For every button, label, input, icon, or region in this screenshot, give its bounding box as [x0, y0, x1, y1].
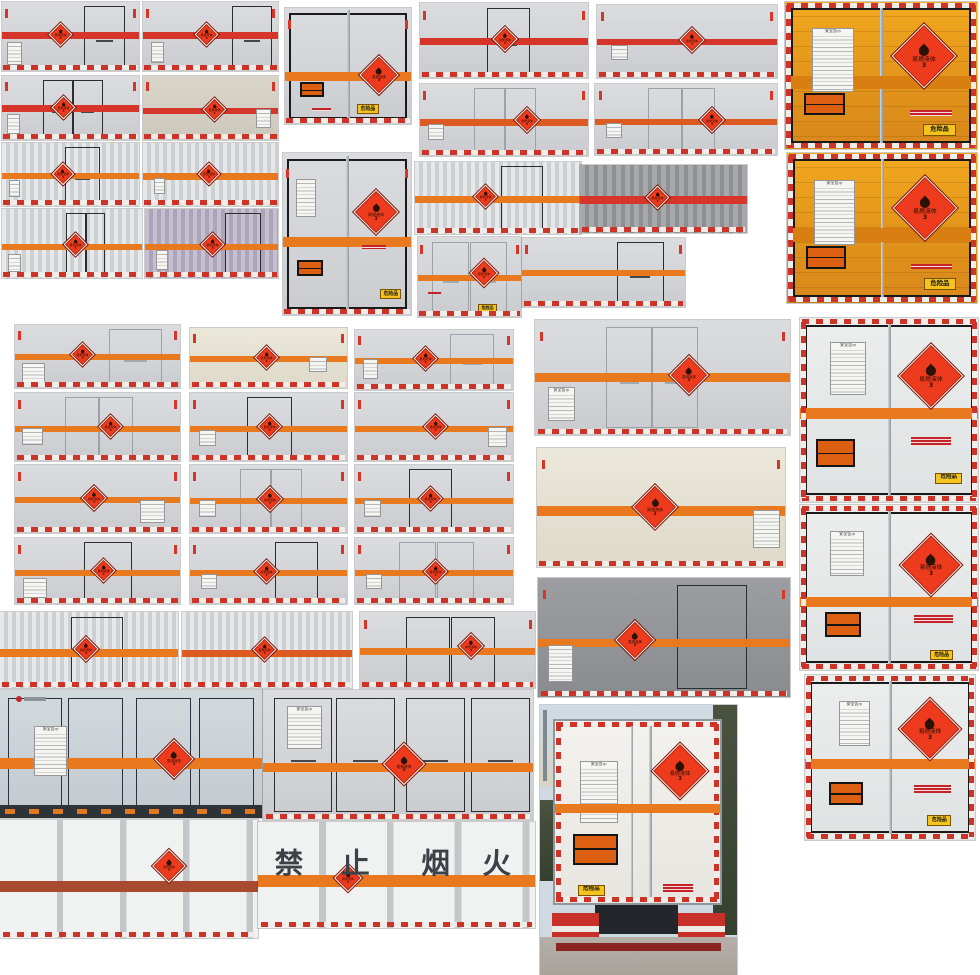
- center-door-post: [889, 678, 892, 836]
- safety-notice-placard: [606, 123, 623, 138]
- placard-class-number: 3: [205, 37, 207, 40]
- orange-hazard-plate: [829, 782, 863, 805]
- safety-notice-placard: 安全告示: [548, 387, 576, 421]
- placard-face: 易燃液体3: [676, 362, 702, 388]
- hazard-placard: 易燃液体3: [254, 345, 278, 369]
- safety-notice-title: 安全告示: [288, 707, 320, 712]
- reflective-stripe: [538, 639, 790, 647]
- checker-strip-right: [972, 508, 977, 666]
- safety-notice-placard: [23, 578, 46, 598]
- checker-strip-left: [806, 678, 811, 836]
- truck-rear-photo: 易燃液体3: [597, 5, 777, 78]
- checker-strip-bottom: [539, 561, 782, 566]
- safety-notice-title: 安全告示: [549, 388, 575, 393]
- hazard-placard: 易燃液体3: [474, 185, 498, 209]
- orange-hazard-plate: [816, 439, 855, 467]
- checker-strip-bottom: [582, 227, 746, 232]
- placard-face: 易燃液体3: [497, 31, 513, 47]
- safety-notice-placard: [201, 574, 217, 589]
- placard-class-number: 3: [929, 572, 933, 578]
- placard-class-number: 3: [109, 429, 111, 432]
- safety-notice-placard: [366, 574, 382, 589]
- side-reflector-left: [18, 331, 21, 340]
- truck-rear-photo: 易燃液体3: [143, 2, 278, 71]
- safety-notice-placard: 安全告示: [830, 531, 864, 576]
- side-reflector-right: [516, 245, 519, 254]
- side-reflector-right: [174, 331, 177, 340]
- side-reflector-left: [358, 545, 361, 554]
- truck-rear-photo: 易燃液体3: [595, 84, 777, 155]
- placard-class-number: 3: [62, 110, 64, 113]
- checker-strip-right: [971, 156, 976, 300]
- manufacturer-banner: [426, 291, 442, 295]
- safety-notice-title: 安全告示: [813, 29, 853, 34]
- danger-goods-plate-text: 危险品: [940, 475, 957, 481]
- lower-guard-band: [0, 805, 262, 818]
- checker-strip-top: [787, 3, 975, 8]
- truck-rear-photo: 易燃液体3: [2, 143, 139, 206]
- placard-face: 易燃液体3: [902, 34, 946, 78]
- truck-rear-photo: [522, 238, 685, 307]
- side-reflector-right: [405, 20, 408, 29]
- side-reflector-right: [777, 460, 780, 469]
- placard-class-number: 3: [85, 651, 87, 654]
- truck-rear-photo: 易燃液体3: [15, 538, 180, 604]
- side-reflector-left: [18, 545, 21, 554]
- checker-strip-right: [969, 678, 974, 836]
- placard-face: 易燃液体3: [56, 100, 71, 115]
- orange-hazard-plate: [573, 834, 618, 865]
- placard-face: 易燃液体3: [257, 642, 272, 657]
- reflective-stripe: [415, 196, 581, 203]
- truck-rear-photo: 易燃液体3: [355, 393, 513, 461]
- placard-class-number: 3: [688, 379, 691, 383]
- checker-strip-bottom: [357, 598, 512, 603]
- danger-goods-plate: 危险品: [578, 885, 605, 896]
- side-reflector-right: [507, 400, 510, 409]
- placard-face: 易燃液体3: [361, 197, 391, 227]
- manufacturer-banner: [360, 244, 388, 250]
- placard-face: 易燃液体3: [428, 419, 443, 434]
- truck-rear-photo: 易燃液体3: [145, 209, 278, 278]
- safety-notice-placard: [199, 430, 215, 446]
- safety-notice-placard: [753, 510, 780, 548]
- safety-notice-title: 安全告示: [815, 181, 855, 186]
- checker-strip-bottom: [362, 682, 534, 687]
- side-reflector-left: [599, 91, 602, 100]
- side-reflector-left: [540, 332, 543, 341]
- no-fire-character: 火: [482, 841, 511, 882]
- safety-notice-placard: 安全告示: [814, 180, 856, 245]
- placard-face: 易燃液体3: [262, 419, 277, 434]
- placard-class-number: 3: [923, 215, 927, 221]
- checker-strip-bottom: [284, 309, 409, 314]
- safety-notice-placard: 安全告示: [839, 701, 870, 746]
- side-reflector-right: [341, 334, 344, 343]
- side-reflector-left: [193, 400, 196, 409]
- side-reflector-left: [193, 545, 196, 554]
- danger-goods-plate: 危险品: [930, 650, 953, 660]
- side-reflector-right: [341, 400, 344, 409]
- checker-strip-bottom: [597, 149, 775, 154]
- truck-rear-photo: 易燃液体3: [190, 538, 347, 604]
- manufacturer-banner: [912, 614, 955, 624]
- truck-rear-photo: 易燃液体3: [2, 76, 139, 140]
- reflective-stripe: [360, 648, 535, 655]
- truck-rear-photo: 易燃液体3: [182, 612, 352, 688]
- placard-face: 易燃液体3: [202, 167, 216, 181]
- full-truck-rear-photo: 安全告示易燃液体3危险品: [540, 705, 737, 975]
- manufacturer-banner: [661, 883, 696, 894]
- side-reflector-left: [525, 245, 528, 254]
- placard-class-number: 3: [81, 357, 83, 360]
- danger-goods-plate: 危险品: [924, 278, 956, 291]
- checker-strip-bottom: [17, 382, 179, 387]
- truck-rear-photo: 易燃液体3: [143, 76, 278, 140]
- side-reflector-right: [782, 332, 785, 341]
- placard-class-number: 3: [403, 768, 406, 772]
- danger-goods-plate-text: 危险品: [361, 107, 376, 112]
- checker-strip-bottom: [184, 682, 351, 687]
- checker-strip-bottom: [556, 897, 718, 902]
- placard-class-number: 3: [429, 501, 431, 504]
- hazard-placard: 易燃液体3: [200, 232, 224, 256]
- reflective-stripe: [0, 881, 258, 892]
- side-reflector-left: [5, 82, 8, 91]
- placard-face: 易燃液体3: [78, 641, 94, 657]
- checker-strip-bottom: [357, 455, 512, 460]
- hazard-placard: 易燃液体3: [413, 347, 437, 371]
- side-reflector-left: [543, 590, 546, 599]
- checker-strip-bottom: [144, 134, 276, 139]
- door-frame: [199, 698, 253, 810]
- truck-rear-photo: 易燃液体3: [0, 820, 258, 938]
- danger-goods-plate: 危险品: [380, 289, 401, 299]
- placard-face: 易燃液体3: [463, 638, 479, 654]
- truck-rear-photo: 安全告示易燃液体3: [535, 320, 790, 435]
- checker-strip-bottom: [192, 382, 346, 387]
- placard-class-number: 3: [485, 199, 487, 202]
- checker-strip-bottom: [789, 297, 975, 302]
- placard-class-number: 3: [264, 652, 266, 655]
- door-frame: [336, 698, 395, 812]
- placard-face: 易燃液体3: [205, 237, 220, 252]
- checker-strip-bottom: [146, 272, 276, 277]
- checker-strip-top: [802, 506, 976, 511]
- placard-face: 易燃液体3: [366, 62, 392, 88]
- orange-hazard-plate: [297, 260, 323, 276]
- side-reflector-right: [507, 545, 510, 554]
- checker-strip-bottom: [524, 301, 684, 306]
- placard-face: 易燃液体3: [661, 752, 699, 790]
- truck-rear-photo: 易燃液体3: [15, 393, 180, 461]
- truck-rear-photo: 易燃液体3: [415, 162, 581, 234]
- truck-rear-photo: 易燃液体3: [0, 612, 178, 688]
- placard-class-number: 3: [504, 42, 506, 45]
- truck-rear-photo: 易燃液体3: [580, 165, 747, 233]
- safety-notice-title: 安全告示: [840, 702, 869, 707]
- side-reflector-right: [133, 9, 136, 18]
- reflective-stripe: [420, 119, 588, 125]
- danger-goods-plate-text: 危险品: [384, 292, 399, 297]
- side-reflector-right: [770, 91, 773, 100]
- checker-strip-bottom: [3, 272, 140, 277]
- checker-strip-bottom: [266, 814, 531, 819]
- safety-notice-placard: [488, 427, 507, 447]
- checker-strip-bottom: [538, 429, 788, 434]
- hazard-placard: 易燃液体3: [423, 415, 447, 439]
- placard-face: 易燃液体3: [390, 750, 418, 778]
- no-fire-character: 禁: [275, 841, 304, 882]
- side-reflector-right: [529, 620, 532, 629]
- placard-class-number: 3: [59, 37, 61, 40]
- side-reflector-right: [770, 12, 773, 21]
- truck-rear-photo: 易燃液体3危险品: [418, 237, 521, 317]
- door-frame: [677, 585, 747, 689]
- checker-strip-bottom: [357, 384, 512, 389]
- safety-notice-placard: 安全告示: [34, 726, 67, 777]
- placard-face: 易燃液体3: [53, 27, 68, 42]
- hazard-placard: 易燃液体3: [197, 163, 220, 186]
- truck-rear-photo: 易燃液体3: [15, 465, 180, 533]
- side-reflector-right: [341, 545, 344, 554]
- checker-strip-left: [786, 5, 791, 146]
- checker-strip-top: [807, 676, 974, 681]
- placard-class-number: 3: [691, 42, 693, 45]
- placard-class-number: 3: [657, 200, 659, 203]
- rear-bumper-right: [678, 913, 725, 937]
- flame-icon: [923, 363, 939, 377]
- safety-notice-placard: [8, 254, 21, 273]
- placard-class-number: 3: [378, 79, 381, 83]
- placard-class-number: 3: [93, 501, 95, 504]
- manufacturer-banner: [310, 107, 333, 113]
- truck-rear-photo: 易燃液体3: [360, 612, 535, 688]
- safety-notice-placard: [7, 42, 21, 65]
- reflective-stripe: [418, 275, 521, 281]
- placard-face: 易燃液体3: [909, 354, 953, 398]
- placard-class-number: 3: [265, 574, 267, 577]
- placard-class-number: 3: [375, 217, 378, 221]
- center-door-post: [888, 508, 891, 666]
- placard-face: 易燃液体3: [75, 347, 90, 362]
- danger-goods-plate: 危险品: [935, 473, 962, 484]
- orange-hazard-plate: [300, 82, 324, 97]
- placard-class-number: 3: [434, 429, 436, 432]
- placard-face: 易燃液体3: [86, 490, 102, 506]
- placard-class-number: 3: [265, 360, 267, 363]
- placard-face: 易燃液体3: [68, 237, 83, 252]
- placard-face: 易燃液体3: [622, 627, 648, 653]
- side-reflector-left: [358, 336, 361, 345]
- hazard-placard: 易燃液体3: [253, 637, 277, 661]
- placard-class-number: 3: [168, 869, 170, 872]
- placard-class-number: 3: [678, 777, 682, 782]
- truck-rear-photo: 易燃液体3: [355, 465, 513, 533]
- orange-hazard-plate: [806, 246, 846, 269]
- side-reflector-right: [782, 590, 785, 599]
- placard-class-number: 3: [929, 383, 933, 389]
- checker-strip-right: [971, 5, 976, 146]
- side-reflector-left: [601, 12, 604, 21]
- truck-rear-photo: 易燃液体3危险品: [283, 153, 411, 315]
- truck-rear-photo: 易燃液体3: [538, 578, 790, 697]
- side-reflector-left: [5, 9, 8, 18]
- truck-rear-photo: 安全告示易燃液体3危险品: [800, 318, 978, 502]
- checker-strip-top: [802, 319, 976, 324]
- hazard-placard: 易燃液体3: [679, 27, 704, 52]
- placard-class-number: 3: [102, 573, 104, 576]
- safety-notice-placard: 安全告示: [812, 28, 854, 92]
- checker-strip-bottom: [807, 834, 974, 839]
- side-reflector-right: [341, 472, 344, 481]
- side-reflector-left: [420, 245, 423, 254]
- side-reflector-right: [582, 11, 585, 20]
- hazard-placard: 易燃液体3: [194, 23, 218, 47]
- checker-strip-bottom: [422, 72, 587, 77]
- placard-class-number: 3: [653, 512, 656, 516]
- side-reflector-right: [582, 91, 585, 100]
- truck-rear-photo: 易燃液体3: [190, 328, 347, 388]
- safety-notice-placard: [428, 124, 443, 140]
- checker-strip-bottom: [599, 72, 775, 77]
- reflective-stripe: [800, 597, 978, 607]
- danger-goods-plate-text: 危险品: [930, 127, 948, 133]
- safety-notice-title: 安全告示: [35, 727, 66, 732]
- truck-rear-photo: 易燃液体3: [143, 143, 278, 206]
- undercarriage: [595, 905, 678, 935]
- brand-logo: [16, 696, 46, 702]
- checker-strip-bottom: [2, 682, 176, 687]
- truck-rear-photo: 易燃液体3: [190, 393, 347, 461]
- danger-goods-plate-text: 危险品: [934, 653, 949, 658]
- danger-goods-plate-text: 危险品: [932, 818, 947, 823]
- placard-face: 易燃液体3: [158, 855, 180, 877]
- placard-face: 易燃液体3: [478, 189, 493, 204]
- checker-strip-top: [556, 722, 718, 727]
- placard-class-number: 3: [711, 122, 713, 125]
- checker-strip-left: [801, 508, 806, 666]
- side-reflector-left: [358, 472, 361, 481]
- safety-notice-placard: [154, 178, 165, 194]
- checker-strip-bottom: [3, 65, 137, 70]
- truck-rear-photo: 易燃液体3: [15, 325, 180, 388]
- orange-box-truck-photo: 安全告示易燃液体3危险品: [785, 2, 977, 149]
- placard-face: 易燃液体3: [910, 544, 952, 586]
- placard-class-number: 3: [213, 111, 215, 114]
- safety-notice-placard: [309, 357, 327, 372]
- brand-logo-mark: [16, 696, 22, 702]
- side-reflector-right: [507, 472, 510, 481]
- placard-face: 易燃液体3: [423, 491, 438, 506]
- side-reflector-right: [133, 82, 136, 91]
- checker-strip-bottom: [144, 200, 276, 205]
- placard-face: 易燃液体3: [199, 27, 214, 42]
- rear-bumper-bar: [556, 943, 721, 951]
- checker-strip-bottom: [802, 496, 976, 501]
- placard-class-number: 3: [173, 763, 176, 767]
- rear-bumper-left: [552, 913, 599, 937]
- danger-goods-plate: 危险品: [357, 104, 379, 114]
- danger-goods-plate-text: 危险品: [481, 306, 493, 310]
- placard-class-number: 3: [424, 361, 426, 364]
- placard-face: 易燃液体3: [475, 264, 493, 282]
- reflective-stripe: [15, 354, 180, 360]
- checker-strip-top: [789, 154, 975, 159]
- side-reflector-left: [18, 472, 21, 481]
- truck-rear-photo: 易燃液体3: [2, 2, 139, 71]
- placard-class-number: 3: [434, 574, 436, 577]
- checker-strip-bottom: [3, 932, 256, 937]
- checker-strip-bottom: [422, 150, 587, 155]
- manufacturer-banner: [909, 263, 955, 271]
- safety-notice-placard: 安全告示: [830, 342, 866, 396]
- side-reflector-right: [679, 245, 682, 254]
- danger-goods-plate-text: 危险品: [931, 281, 950, 287]
- placard-face: 易燃液体3: [262, 491, 278, 507]
- placard-class-number: 3: [211, 247, 213, 250]
- safety-notice-placard: [364, 500, 380, 517]
- side-reflector-left: [146, 9, 149, 18]
- checker-strip-bottom: [144, 65, 276, 70]
- safety-notice-placard: [363, 359, 378, 379]
- checker-strip-left: [801, 322, 806, 499]
- door-frame: [471, 698, 530, 812]
- checker-strip-bottom: [286, 118, 410, 123]
- danger-goods-plate: 危险品: [923, 124, 956, 136]
- placard-class-number: 3: [483, 276, 485, 279]
- safety-notice-placard: [548, 645, 573, 683]
- placard-face: 易燃液体3: [650, 190, 665, 205]
- danger-goods-plate: 危险品: [927, 815, 951, 825]
- placard-face: 易燃液体3: [103, 419, 118, 434]
- checker-strip-bottom: [17, 598, 179, 603]
- flame-icon: [916, 43, 932, 57]
- hazard-placard: 易燃液体3: [70, 343, 94, 367]
- checker-strip-bottom: [192, 598, 346, 603]
- brand-logo-text: [24, 697, 46, 701]
- flame-icon: [673, 759, 687, 771]
- checker-strip-bottom: [787, 143, 975, 148]
- placard-class-number: 3: [922, 63, 926, 69]
- side-reflector-right: [272, 9, 275, 18]
- side-reflector-right: [174, 400, 177, 409]
- truck-rear-photo: 易燃液体3危险品: [285, 8, 411, 124]
- placard-class-number: 3: [208, 176, 210, 179]
- side-reflector-left: [18, 400, 21, 409]
- safety-notice-placard: [151, 42, 164, 63]
- side-reflector-right: [507, 336, 510, 345]
- truck-rear-photo: 易燃液体3: [2, 209, 142, 278]
- truck-rear-photo: 安全告示易燃液体3: [0, 690, 262, 818]
- side-reflector-right: [174, 472, 177, 481]
- manufacturer-banner: [908, 109, 954, 116]
- truck-rear-photo: 安全告示易燃液体3: [263, 690, 533, 820]
- safety-notice-title: 安全告示: [581, 762, 617, 767]
- side-reflector-left: [423, 91, 426, 100]
- checker-strip-bottom: [3, 134, 137, 139]
- reflective-stripe: [805, 759, 975, 769]
- placard-face: 易燃液体3: [428, 564, 443, 579]
- placard-face: 易燃液体3: [640, 492, 670, 522]
- reflective-stripe: [800, 408, 978, 419]
- safety-notice-placard: [9, 180, 21, 197]
- safety-notice-placard: [22, 363, 45, 384]
- utility-pole: [543, 710, 547, 780]
- placard-face: 易燃液体3: [418, 351, 433, 366]
- truck-rear-photo: 易燃液体3: [420, 3, 588, 78]
- placard-class-number: 3: [268, 501, 270, 504]
